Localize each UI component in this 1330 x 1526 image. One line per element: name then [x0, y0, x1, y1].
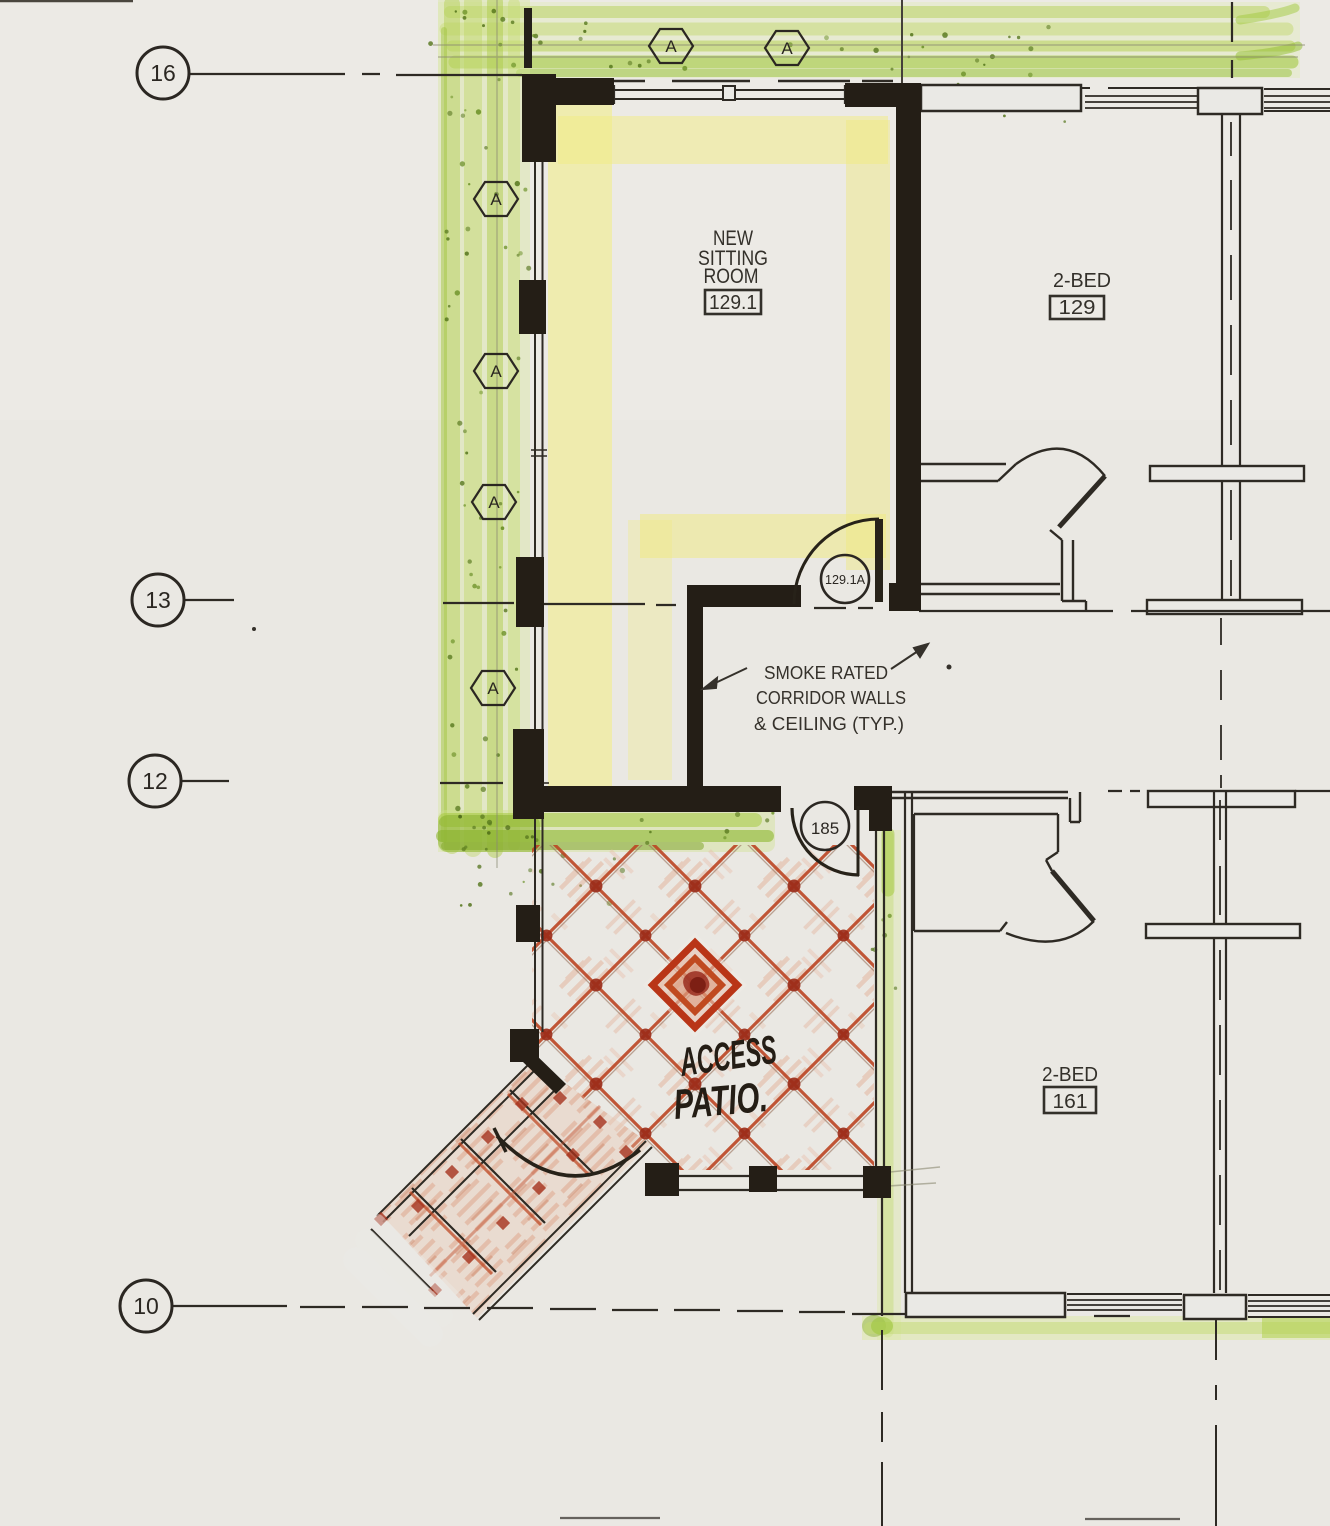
svg-text:161: 161 — [1053, 1091, 1088, 1113]
svg-text:A: A — [665, 37, 677, 56]
svg-text:10: 10 — [133, 1293, 159, 1319]
svg-text:16: 16 — [150, 60, 176, 86]
svg-text:A: A — [490, 190, 502, 209]
svg-text:13: 13 — [145, 587, 171, 613]
svg-text:2-BED: 2-BED — [1053, 270, 1111, 292]
svg-text:A: A — [490, 362, 502, 381]
svg-text:A: A — [488, 493, 500, 512]
svg-text:ROOM: ROOM — [704, 265, 759, 288]
svg-text:CORRIDOR WALLS: CORRIDOR WALLS — [756, 688, 906, 708]
svg-text:PATIO.: PATIO. — [672, 1073, 770, 1128]
svg-text:129: 129 — [1059, 297, 1096, 319]
svg-text:12: 12 — [142, 768, 168, 794]
svg-text:A: A — [487, 679, 499, 698]
svg-text:A: A — [781, 39, 793, 58]
svg-text:& CEILING (TYP.): & CEILING (TYP.) — [754, 714, 904, 734]
svg-text:SMOKE RATED: SMOKE RATED — [764, 663, 888, 683]
svg-text:129.1A: 129.1A — [825, 572, 865, 587]
svg-text:2-BED: 2-BED — [1042, 1064, 1098, 1086]
svg-text:129.1: 129.1 — [709, 292, 757, 314]
svg-text:185: 185 — [811, 819, 839, 838]
